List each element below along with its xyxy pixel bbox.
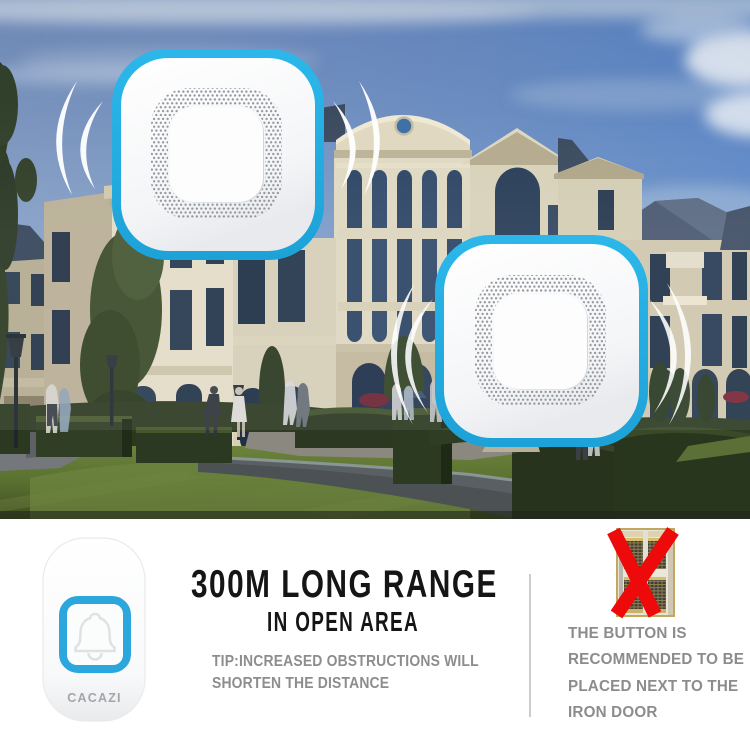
svg-text:CACAZI: CACAZI xyxy=(67,691,121,705)
